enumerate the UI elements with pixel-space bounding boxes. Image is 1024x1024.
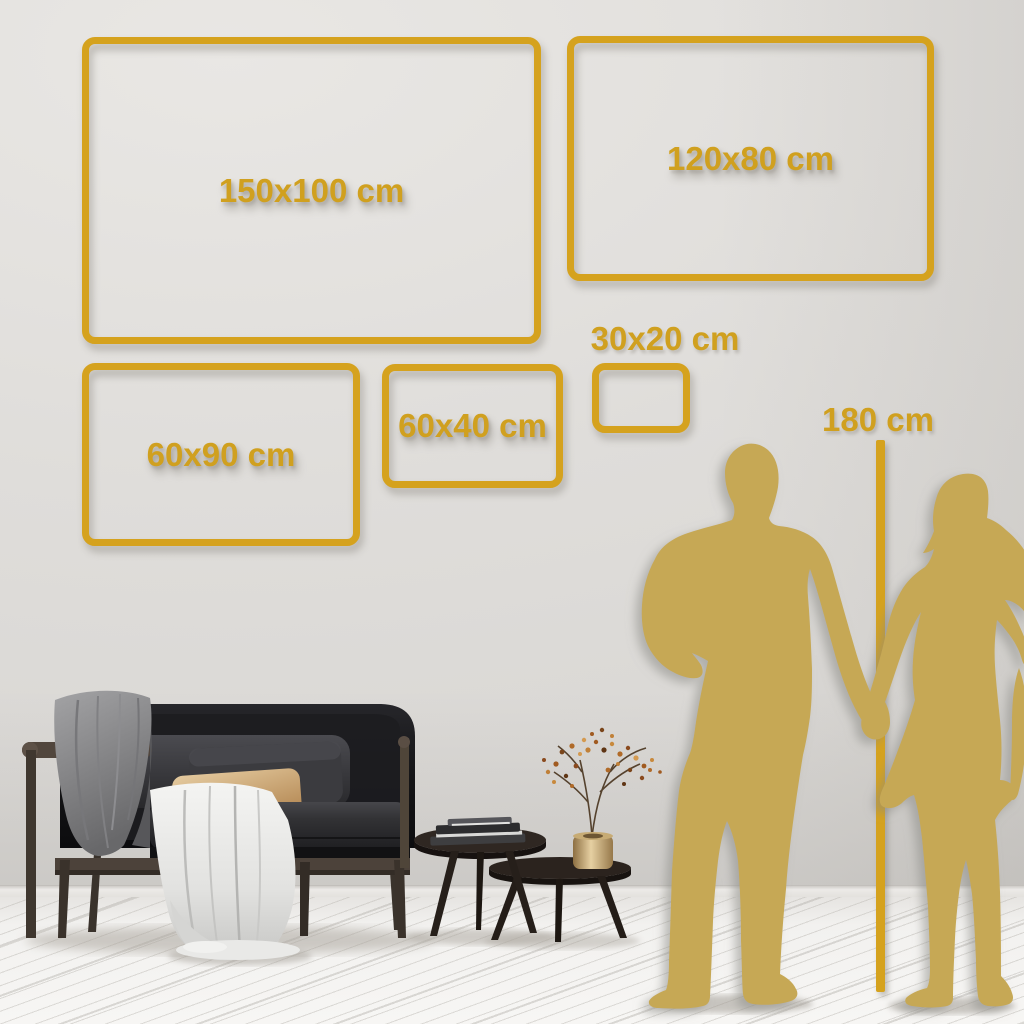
room-scene-art	[0, 0, 1024, 1024]
dried-branch	[542, 728, 662, 836]
size-guide-scene: 150x100 cm 120x80 cm 60x90 cm 60x40 cm 3…	[0, 0, 1024, 1024]
woman-arm-edge	[1010, 668, 1024, 800]
brass-vase	[573, 832, 613, 869]
books	[430, 816, 526, 845]
floor-shadows	[25, 926, 1016, 1014]
couple-silhouette	[642, 444, 1024, 1009]
woman-silhouette	[861, 474, 1024, 1008]
man-silhouette	[642, 444, 882, 1009]
